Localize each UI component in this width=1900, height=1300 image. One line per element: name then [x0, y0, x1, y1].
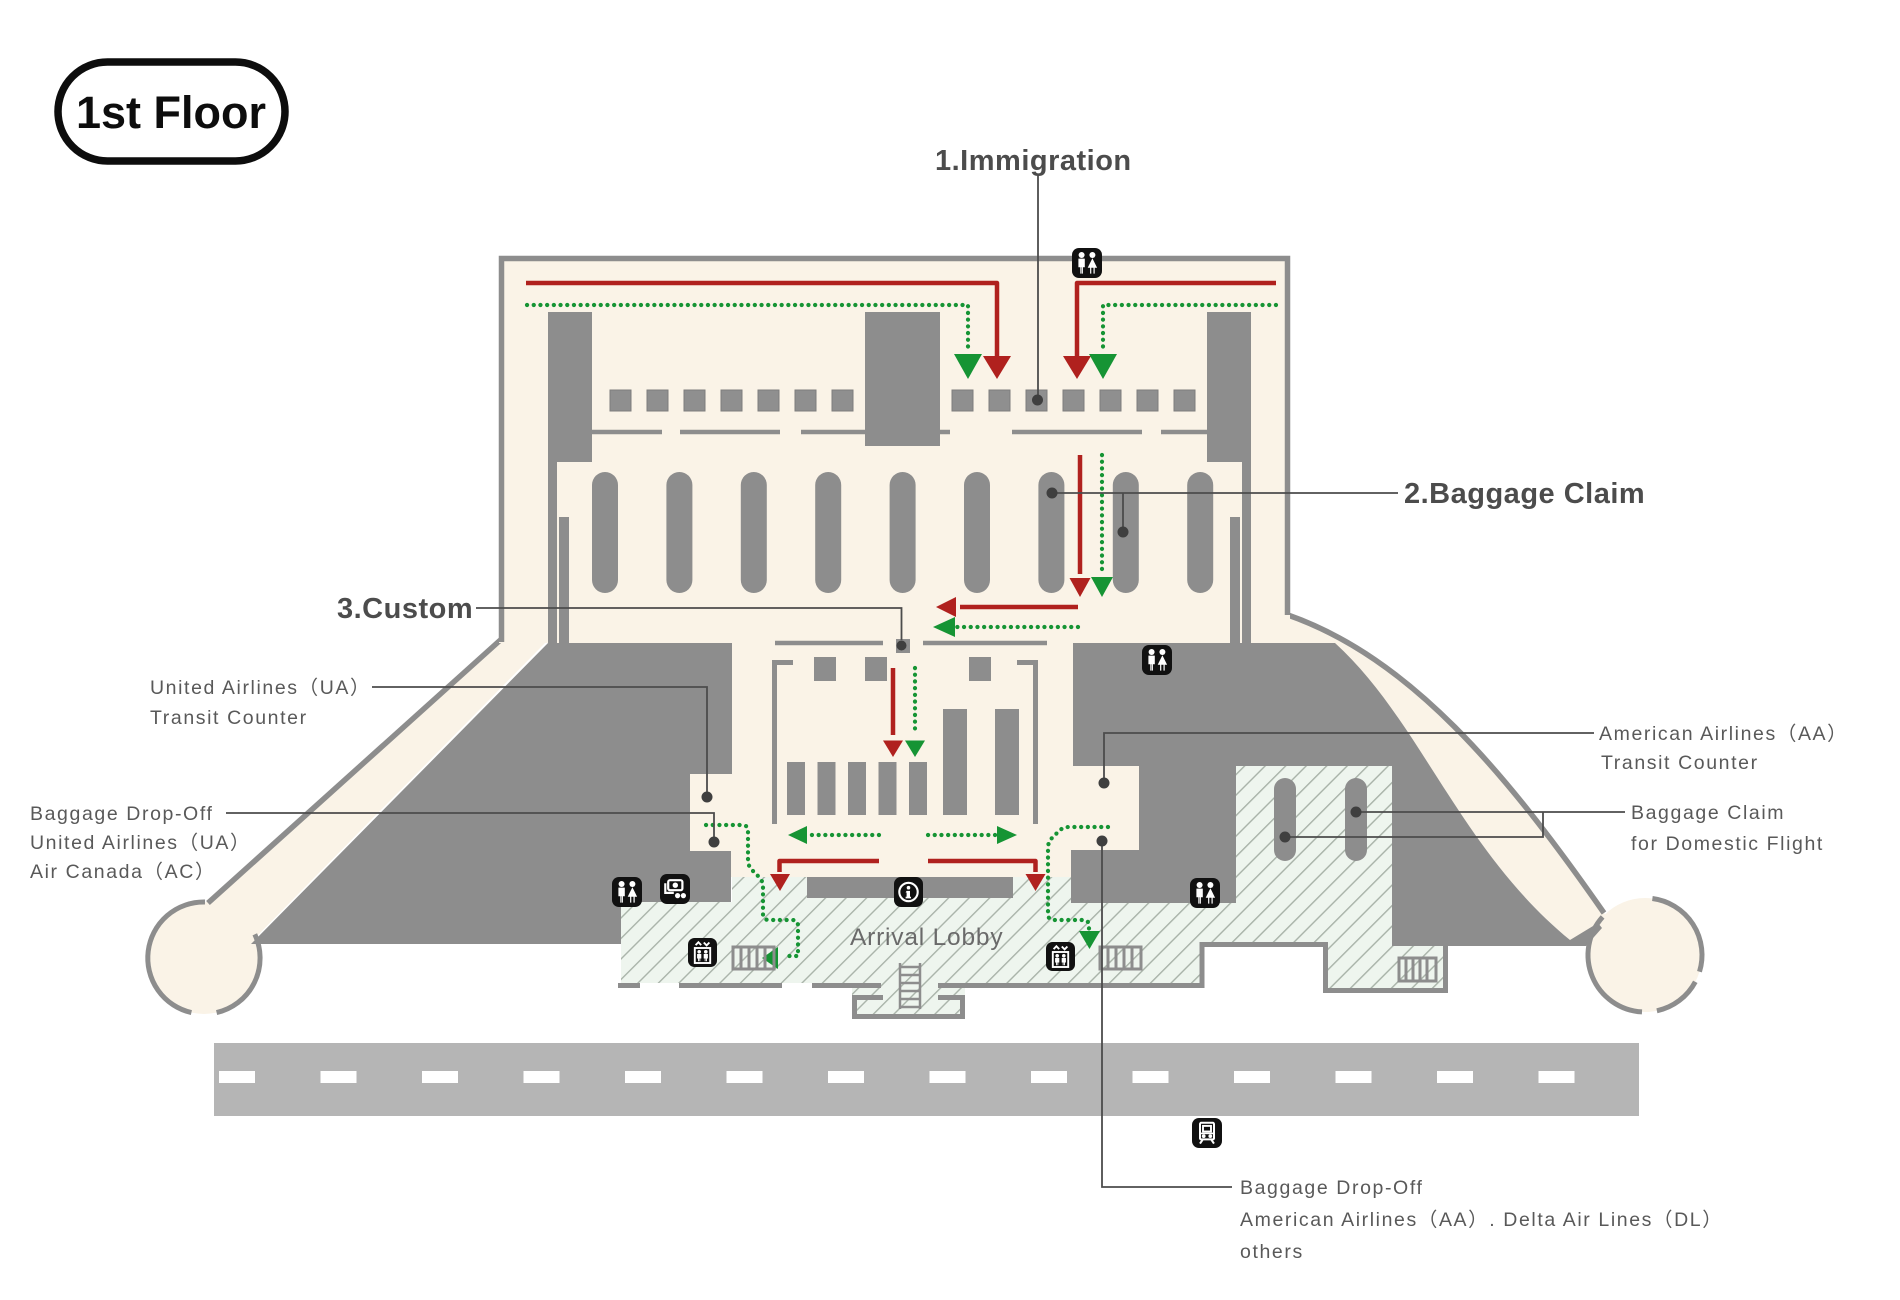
svg-text:American Airlines（AA）. Delta A: American Airlines（AA）. Delta Air Lines（D… — [1240, 1209, 1723, 1231]
svg-text:United Airlines（UA）: United Airlines（UA） — [30, 832, 251, 854]
svg-text:others: others — [1240, 1241, 1304, 1263]
svg-text:1st Floor: 1st Floor — [76, 87, 266, 138]
svg-text:Air Canada（AC）: Air Canada（AC） — [30, 861, 216, 883]
svg-text:2.Baggage Claim: 2.Baggage Claim — [1404, 478, 1645, 510]
svg-text:3.Custom: 3.Custom — [337, 593, 473, 625]
svg-text:Baggage Claim: Baggage Claim — [1631, 802, 1785, 824]
svg-text:1.Immigration: 1.Immigration — [935, 145, 1132, 177]
svg-text:Baggage Drop-Off: Baggage Drop-Off — [30, 803, 214, 825]
svg-text:Arrival Lobby: Arrival Lobby — [850, 924, 1003, 951]
svg-text:United Airlines（UA）: United Airlines（UA） — [150, 677, 371, 699]
svg-text:Transit Counter: Transit Counter — [1601, 752, 1759, 774]
svg-text:for Domestic Flight: for Domestic Flight — [1631, 833, 1824, 855]
svg-text:American Airlines（AA）: American Airlines（AA） — [1599, 723, 1848, 745]
svg-text:Baggage Drop-Off: Baggage Drop-Off — [1240, 1177, 1424, 1199]
svg-text:Transit Counter: Transit Counter — [150, 707, 308, 729]
